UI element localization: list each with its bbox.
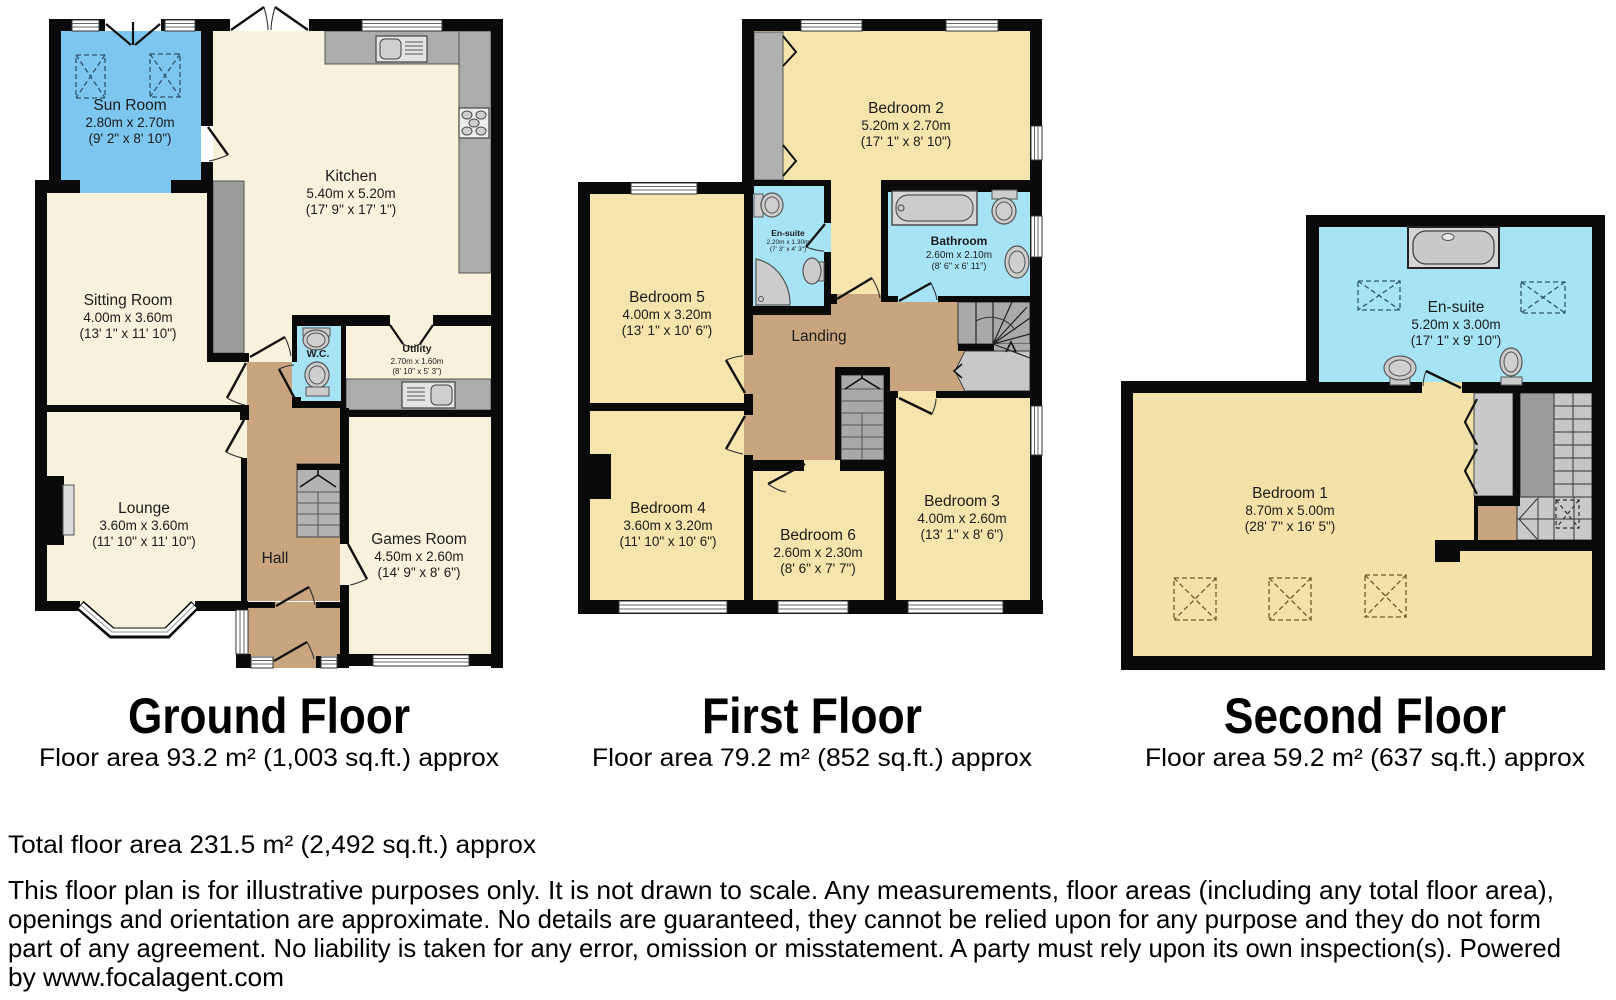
svg-text:openings and orientation are a: openings and orientation are approximate… (8, 904, 1541, 934)
svg-text:This floor plan is for illustr: This floor plan is for illustrative purp… (8, 875, 1554, 905)
svg-text:(8' 10" x 5' 3"): (8' 10" x 5' 3") (392, 367, 442, 376)
svg-text:Games Room: Games Room (371, 531, 467, 548)
svg-text:Bathroom: Bathroom (931, 234, 988, 248)
svg-text:First Floor: First Floor (702, 688, 922, 744)
svg-text:W.C.: W.C. (307, 348, 330, 360)
svg-text:Hall: Hall (262, 550, 289, 567)
svg-text:Bedroom 4: Bedroom 4 (630, 500, 706, 517)
svg-text:Floor area 93.2 m² (1,003 sq.f: Floor area 93.2 m² (1,003 sq.ft.) approx (39, 744, 500, 772)
svg-text:(14' 9" x 8' 6"): (14' 9" x 8' 6") (377, 565, 460, 580)
svg-text:En-suite: En-suite (1428, 299, 1485, 316)
svg-text:Landing: Landing (791, 328, 846, 345)
svg-text:(17' 1" x 9' 10"): (17' 1" x 9' 10") (1411, 333, 1502, 348)
svg-text:Bedroom 5: Bedroom 5 (629, 289, 705, 306)
svg-text:Sun Room: Sun Room (93, 97, 166, 114)
svg-text:Lounge: Lounge (118, 500, 170, 517)
svg-text:2.80m x 2.70m: 2.80m x 2.70m (85, 115, 174, 130)
svg-text:2.60m x 2.30m: 2.60m x 2.30m (773, 545, 862, 560)
svg-text:by www.focalagent.com: by www.focalagent.com (8, 962, 284, 992)
svg-text:(13' 1" x 8' 6"): (13' 1" x 8' 6") (920, 527, 1003, 542)
svg-text:Second Floor: Second Floor (1224, 688, 1506, 744)
svg-text:2.60m x 2.10m: 2.60m x 2.10m (926, 250, 992, 261)
svg-text:(13' 1" x 11' 10"): (13' 1" x 11' 10") (79, 326, 176, 341)
svg-text:3.60m x 3.60m: 3.60m x 3.60m (99, 518, 188, 533)
svg-text:Floor area 79.2 m² (852 sq.ft.: Floor area 79.2 m² (852 sq.ft.) approx (592, 744, 1033, 772)
svg-text:2.70m x 1.60m: 2.70m x 1.60m (391, 357, 444, 366)
svg-text:(7' 3" x 4' 3"): (7' 3" x 4' 3") (770, 246, 806, 253)
svg-text:(8' 6" x 6' 11"): (8' 6" x 6' 11") (932, 261, 987, 271)
svg-text:(11' 10" x 11' 10"): (11' 10" x 11' 10") (92, 534, 196, 549)
svg-text:(13' 1" x 10' 6"): (13' 1" x 10' 6") (622, 323, 713, 338)
svg-text:5.40m x 5.20m: 5.40m x 5.20m (306, 186, 395, 201)
svg-text:Kitchen: Kitchen (325, 168, 377, 185)
svg-text:(9' 2" x 8' 10"): (9' 2" x 8' 10") (88, 131, 171, 146)
svg-text:4.00m x 3.60m: 4.00m x 3.60m (83, 310, 172, 325)
svg-text:5.20m x 3.00m: 5.20m x 3.00m (1411, 317, 1500, 332)
svg-text:5.20m x 2.70m: 5.20m x 2.70m (861, 118, 950, 133)
svg-text:(11' 10" x 10' 6"): (11' 10" x 10' 6") (619, 534, 716, 549)
svg-text:part of any agreement. No liab: part of any agreement. No liability is t… (8, 933, 1561, 963)
svg-text:Bedroom 3: Bedroom 3 (924, 493, 1000, 510)
svg-text:Ground Floor: Ground Floor (128, 688, 410, 744)
svg-text:Utility: Utility (402, 343, 431, 355)
svg-text:(8' 6" x 7' 7"): (8' 6" x 7' 7") (780, 561, 856, 576)
svg-text:4.00m x 3.20m: 4.00m x 3.20m (622, 307, 711, 322)
svg-text:Total floor area 231.5 m² (2,4: Total floor area 231.5 m² (2,492 sq.ft.)… (8, 831, 537, 859)
svg-text:Bedroom 2: Bedroom 2 (868, 100, 944, 117)
svg-text:(17' 9" x 17' 1"): (17' 9" x 17' 1") (306, 202, 397, 217)
svg-text:(17' 1" x 8' 10"): (17' 1" x 8' 10") (861, 134, 952, 149)
svg-text:Floor area 59.2 m² (637 sq.ft.: Floor area 59.2 m² (637 sq.ft.) approx (1145, 744, 1586, 772)
svg-text:3.60m x 3.20m: 3.60m x 3.20m (623, 518, 712, 533)
svg-text:4.00m x 2.60m: 4.00m x 2.60m (917, 511, 1006, 526)
svg-text:8.70m x 5.00m: 8.70m x 5.00m (1245, 503, 1334, 518)
svg-text:4.50m x 2.60m: 4.50m x 2.60m (374, 549, 463, 564)
svg-text:Sitting Room: Sitting Room (84, 292, 173, 309)
svg-text:Bedroom 1: Bedroom 1 (1252, 485, 1328, 502)
svg-text:Bedroom 6: Bedroom 6 (780, 527, 856, 544)
svg-text:En-suite: En-suite (771, 228, 805, 238)
svg-text:(28' 7" x 16' 5"): (28' 7" x 16' 5") (1245, 519, 1336, 534)
svg-text:2.20m x 1.30m: 2.20m x 1.30m (767, 239, 810, 246)
